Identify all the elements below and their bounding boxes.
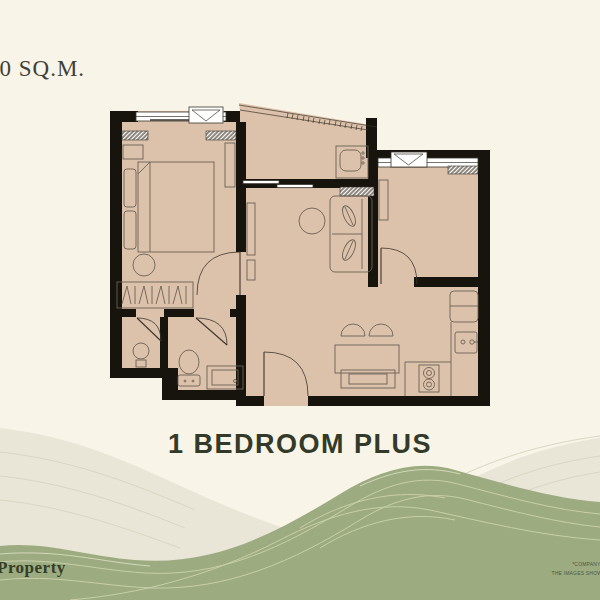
brand-text: Property [0, 558, 66, 578]
page-graphics [0, 0, 600, 600]
curtain-box [122, 131, 148, 140]
page-title: 1 BEDROOM PLUS [0, 429, 600, 460]
disclaimer: *COMPANY RESERVES THE RI THE IMAGES SHOW… [330, 560, 600, 577]
disclaimer-line: THE IMAGES SHOWN ARE COMPUTER [330, 569, 600, 578]
curtain-box [448, 166, 478, 174]
area-label: 00 SQ.M. [0, 56, 85, 82]
ac-ledge [340, 187, 374, 196]
floor-plan [110, 103, 490, 406]
toilet [178, 350, 200, 386]
curtain-box [206, 131, 236, 140]
disclaimer-line: *COMPANY RESERVES THE RI [330, 560, 600, 569]
brochure-page: { "colors": { "background": "#f8f5e8", "… [0, 0, 600, 600]
